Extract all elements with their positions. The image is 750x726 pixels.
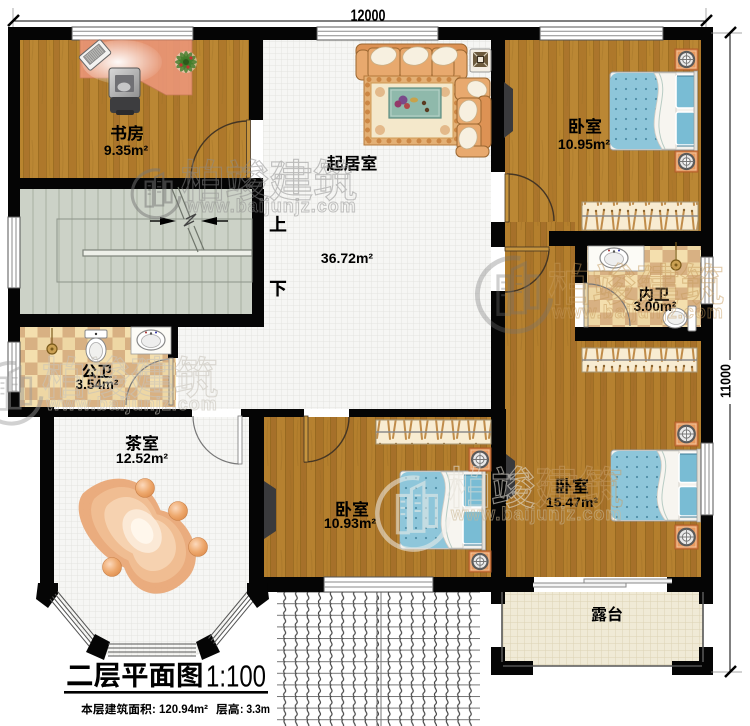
svg-text:11000: 11000 xyxy=(718,364,735,398)
svg-text:9.35m²: 9.35m² xyxy=(104,142,149,158)
svg-text:: 120.94m²: : 120.94m² xyxy=(152,702,208,716)
svg-text:10.93m²: 10.93m² xyxy=(324,515,376,531)
svg-text:10.95m²: 10.95m² xyxy=(558,136,610,152)
svg-text:1:100: 1:100 xyxy=(206,659,266,694)
svg-text:36.72m²: 36.72m² xyxy=(321,250,373,266)
svg-text:www.baijunjz.com: www.baijunjz.com xyxy=(450,504,622,524)
svg-text:12.52m²: 12.52m² xyxy=(116,450,168,466)
svg-text:: 3.3m: : 3.3m xyxy=(240,702,270,716)
svg-text:www.baijunjz.com: www.baijunjz.com xyxy=(551,302,723,322)
svg-text:www.baijunjz.com: www.baijunjz.com xyxy=(45,394,217,414)
svg-text:12000: 12000 xyxy=(351,6,386,25)
svg-text:www.baijunjz.com: www.baijunjz.com xyxy=(184,196,356,216)
